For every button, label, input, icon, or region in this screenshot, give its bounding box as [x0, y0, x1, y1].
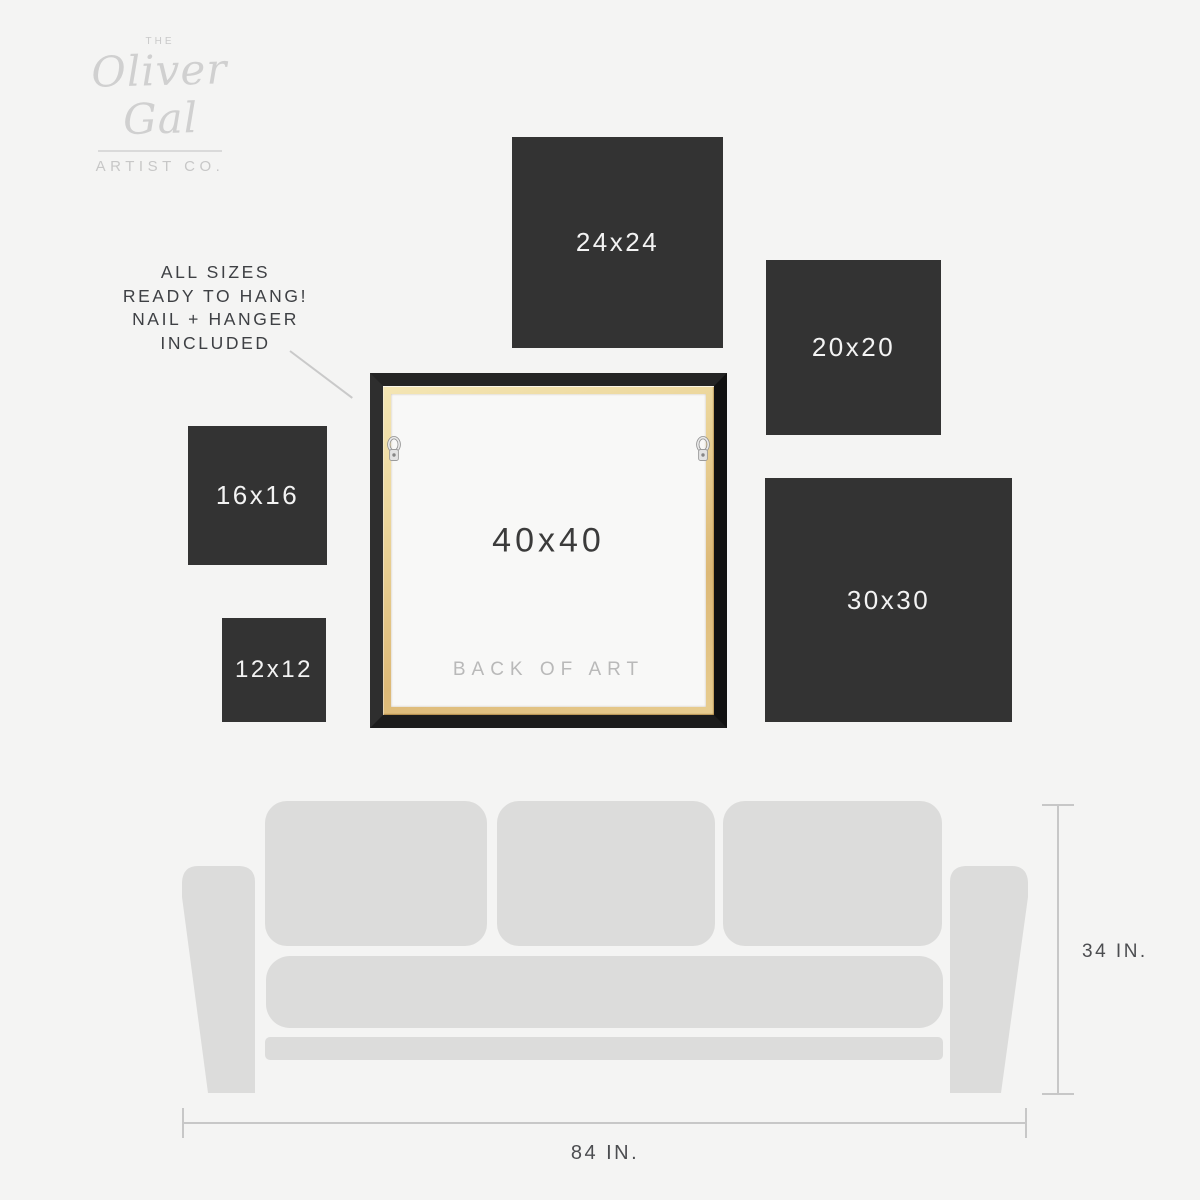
- size-guide-infographic: THE Oliver Gal ARTIST CO. ALL SIZES READ…: [0, 0, 1200, 1200]
- brand-subtitle: ARTIST CO.: [52, 158, 268, 175]
- sofa-back-cushion: [723, 801, 942, 946]
- size-label: 30x30: [847, 585, 930, 616]
- sofa-height-label: 34 IN.: [1082, 941, 1148, 963]
- wood-stretcher-bars: 40x40 BACK OF ART: [383, 386, 714, 715]
- size-label: 24x24: [576, 227, 659, 258]
- sofa-left-arm: [182, 866, 255, 1093]
- d-ring-hanger-icon: [695, 436, 711, 464]
- sofa-shape: [182, 801, 1028, 1093]
- size-label: 20x20: [812, 332, 895, 363]
- note-pointer-line: [289, 350, 352, 399]
- sofa-back-cushion: [497, 801, 715, 946]
- size-label: 16x16: [216, 480, 299, 511]
- size-square-30x30: 30x30: [765, 478, 1012, 722]
- brand-name: Oliver Gal: [51, 44, 269, 146]
- size-square-20x20: 20x20: [766, 260, 941, 435]
- ready-to-hang-note: ALL SIZES READY TO HANG! NAIL + HANGER I…: [88, 261, 343, 355]
- canvas-backing: 40x40 BACK OF ART: [391, 394, 706, 707]
- d-ring-hanger-icon: [386, 436, 402, 464]
- sofa-seat-cushion: [266, 956, 943, 1028]
- note-line: READY TO HANG!: [88, 285, 343, 309]
- frame-size-label: 40x40: [492, 522, 605, 561]
- sofa-base: [265, 1037, 943, 1060]
- back-of-art-label: BACK OF ART: [453, 659, 644, 681]
- brand-divider: [98, 150, 222, 152]
- size-square-12x12: 12x12: [222, 618, 326, 722]
- size-square-16x16: 16x16: [188, 426, 327, 565]
- size-label: 12x12: [235, 656, 313, 684]
- sofa-back-cushion: [265, 801, 487, 946]
- sofa-width-label: 84 IN.: [571, 1142, 639, 1165]
- brand-logo: THE Oliver Gal ARTIST CO.: [52, 36, 268, 175]
- note-line: INCLUDED: [88, 332, 343, 356]
- framed-canvas-back-40x40: 40x40 BACK OF ART: [370, 373, 727, 728]
- note-line: ALL SIZES: [88, 261, 343, 285]
- sofa-silhouette: [0, 780, 1200, 1170]
- sofa-right-arm: [950, 866, 1028, 1093]
- size-square-24x24: 24x24: [512, 137, 723, 348]
- note-line: NAIL + HANGER: [88, 308, 343, 332]
